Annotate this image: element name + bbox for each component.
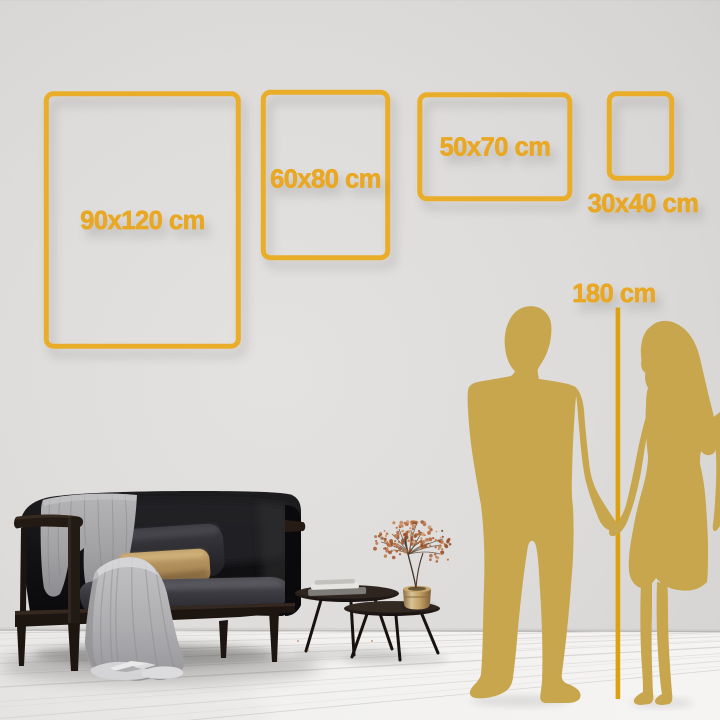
svg-text:30x40 cm: 30x40 cm bbox=[588, 190, 699, 218]
svg-text:50x70 cm: 50x70 cm bbox=[440, 134, 551, 162]
svg-text:90x120 cm: 90x120 cm bbox=[80, 207, 205, 235]
svg-text:60x80 cm: 60x80 cm bbox=[270, 166, 381, 194]
svg-text:180 cm: 180 cm bbox=[572, 280, 656, 308]
